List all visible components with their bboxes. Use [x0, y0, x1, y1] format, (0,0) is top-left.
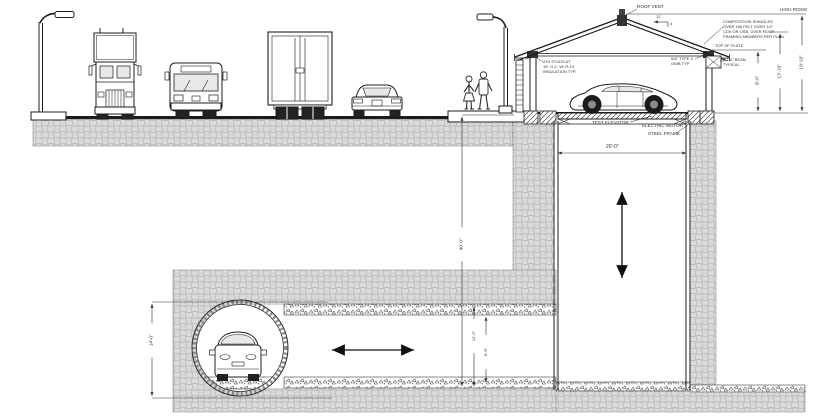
roof-vent-label: ROOF VENT	[637, 4, 664, 10]
top-of-plate-label: TOP OF PLATE	[715, 44, 743, 49]
gwb-note-line: GWB TYP.	[671, 61, 693, 66]
pedestrians	[464, 72, 493, 109]
dim-tunnel-clear: 8'-6"	[484, 335, 488, 369]
beam-note-line: TYPICAL	[723, 62, 746, 67]
roof-pitch-rise: 4	[670, 22, 672, 27]
street-lamp-left	[31, 12, 74, 121]
dim-bore-height: 12'-2"	[472, 319, 476, 353]
street-lamp-right	[477, 14, 512, 113]
steel-frame-label: STEEL FRAME	[648, 131, 680, 137]
gwb-note: 5/8" TYPE X GWB TYP.	[671, 56, 693, 66]
dim-wall-height: 8'-0"	[756, 63, 761, 97]
dim-shaft-width: 20'-0"	[606, 144, 619, 150]
dim-roof-height: 13'-10"	[778, 54, 783, 88]
beam-note: 1-1/2" BEAM TYPICAL	[723, 57, 746, 67]
dim-ridge-height: 19'-10"	[800, 45, 805, 79]
high-ridge-label: HIGH RIDGE	[780, 7, 807, 13]
dim-shaft-depth: 40'-0"	[460, 227, 465, 261]
roof-pitch-run: 12	[656, 15, 660, 20]
electric-motor-label: ELECTRIC MOTOR	[642, 123, 683, 129]
box-truck-rear	[268, 32, 332, 119]
car-rear	[352, 85, 402, 116]
line-art	[0, 0, 822, 417]
shingle-note-line: FRAMING MEMBERS PER PLAN	[723, 34, 784, 39]
semi-truck-front	[89, 28, 141, 119]
test-elevator-label: TEST ELEVATOR	[592, 120, 629, 126]
wall-note: 2X4 STUDS AT 16" O.C. W/ R-13 INSULATION…	[543, 59, 576, 74]
bus-front	[165, 63, 227, 118]
elevator-car-side	[570, 84, 677, 114]
section-drawing: ROOF VENT HIGH RIDGE TOP OF PLATE 12 4 C…	[0, 0, 822, 417]
dim-tunnel-diameter: 14'-0"	[150, 323, 155, 357]
wall-note-line: INSULATION TYP.	[543, 69, 576, 74]
shingle-note: COMPOSITION SHINGLES OVER 15# FELT OVER …	[723, 19, 784, 39]
